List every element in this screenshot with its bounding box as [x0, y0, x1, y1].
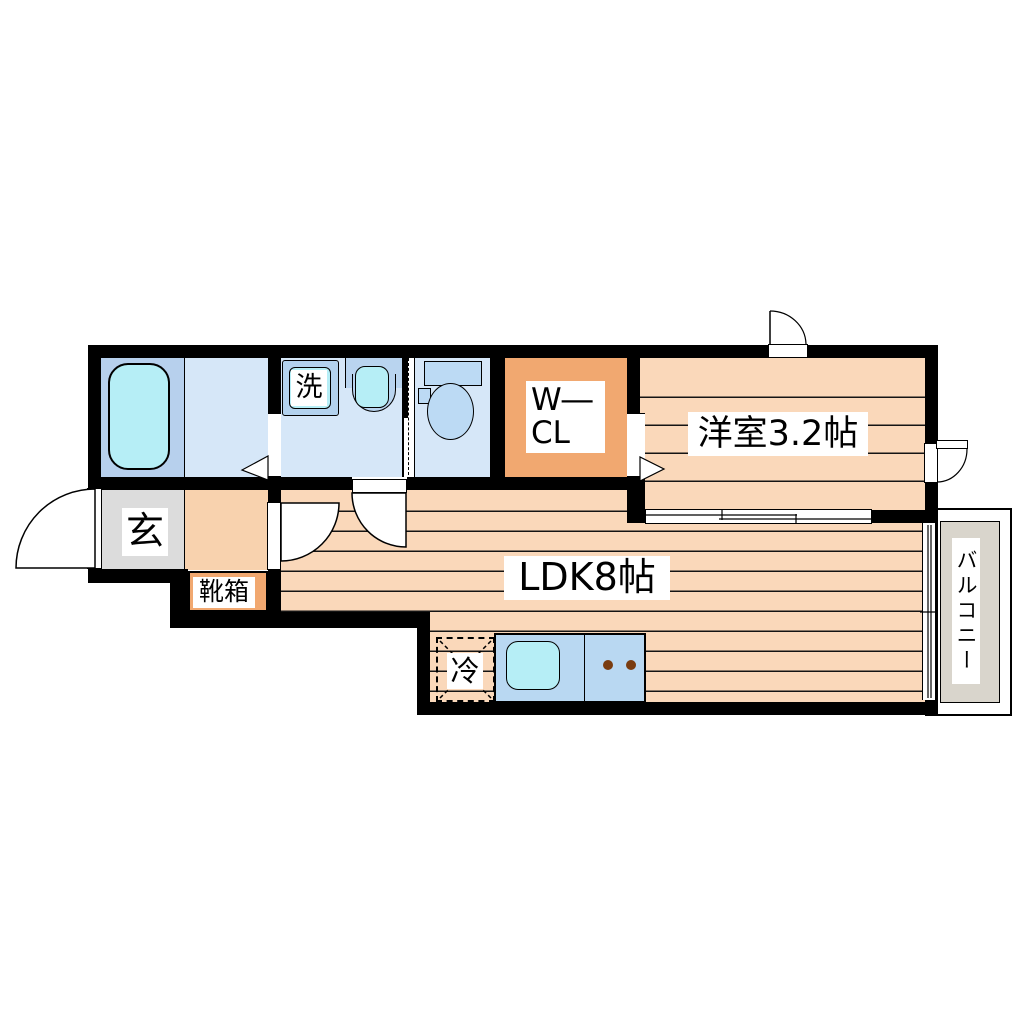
washroom-door-leaf — [352, 479, 407, 493]
entrance-label: 玄 — [122, 508, 168, 556]
refrigerator-label: 冷 — [447, 653, 483, 689]
top-window-swing-arc — [770, 311, 806, 344]
wall-right-mid — [925, 483, 938, 527]
wall-step-horizontal — [170, 612, 430, 628]
walk-in-closet-label-line1: W― — [531, 384, 593, 417]
right-window-swing-arc — [937, 449, 967, 482]
bathroom-door-opening — [268, 413, 281, 477]
wall-hall-ldk-lower — [268, 569, 281, 628]
vanity-basin — [355, 366, 389, 408]
stove-burner-right — [626, 660, 636, 670]
toilet-bowl — [427, 383, 474, 440]
wall-middle-left — [101, 477, 352, 490]
wall-top-right — [808, 345, 938, 358]
hallway-floor — [185, 490, 268, 570]
wall-closet-western — [627, 345, 640, 413]
kitchen-counter-divider — [584, 635, 585, 701]
western-ldk-sliding-door — [645, 509, 872, 524]
toilet-sliding-door-track — [408, 358, 409, 475]
balcony-sliding-door — [922, 523, 936, 700]
washer-label: 洗 — [291, 370, 327, 406]
bathtub — [108, 363, 170, 470]
entrance-door-swing-arc — [16, 489, 95, 568]
hallway-door-leaf — [267, 502, 281, 570]
wall-kitchen-left — [417, 612, 430, 715]
ldk-label: LDK8帖 — [504, 556, 670, 600]
wall-right-upper — [925, 345, 938, 443]
wall-bottom — [417, 702, 938, 715]
wall-right-lower — [925, 700, 938, 716]
walk-in-closet-label: W― CL — [526, 381, 605, 453]
wall-bath-washroom — [268, 345, 281, 413]
entrance-door-leaf — [87, 488, 102, 569]
shoe-box-label: 靴箱 — [193, 577, 255, 608]
wall-toilet-closet — [490, 345, 505, 490]
wall-western-bottom-right — [872, 510, 925, 523]
floor-plan: 洗 W― CL 洋室3.2帖 玄 靴箱 LDK8帖 冷 バルコニー — [0, 0, 1020, 1020]
closet-door-opening — [627, 413, 645, 477]
stove-burner-left — [603, 660, 613, 670]
walk-in-closet-label-line2: CL — [531, 417, 570, 450]
kitchen-sink — [506, 641, 560, 690]
wall-left — [88, 345, 101, 490]
wall-middle-right — [407, 477, 645, 490]
western-room-top-window — [768, 344, 808, 358]
wall-top-left — [88, 345, 769, 358]
wall-hall-ldk-upper — [268, 477, 281, 503]
wall-jog — [627, 477, 645, 523]
balcony-label: バルコニー — [952, 538, 980, 684]
right-window-leaf — [936, 440, 968, 449]
western-room-label: 洋室3.2帖 — [688, 412, 868, 456]
western-room-right-window — [924, 443, 938, 483]
toilet-sliding-door — [402, 358, 415, 477]
